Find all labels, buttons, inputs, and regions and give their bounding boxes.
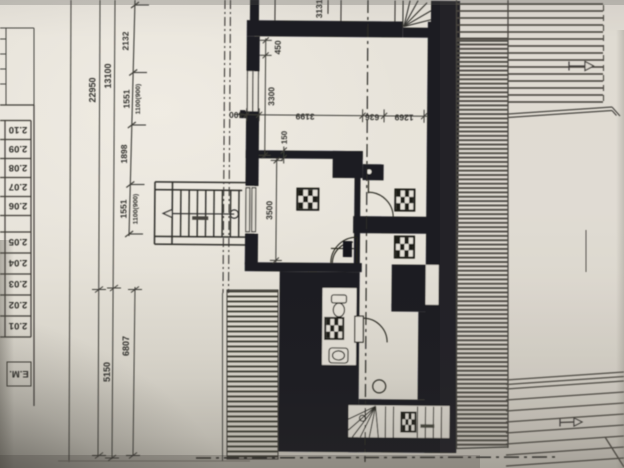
svg-text:2.08: 2.08 (9, 162, 28, 173)
svg-text:1269: 1269 (394, 112, 413, 122)
svg-text:1100(900): 1100(900) (133, 194, 140, 225)
svg-text:1898: 1898 (119, 144, 129, 163)
svg-text:450: 450 (273, 40, 283, 55)
svg-text:1551: 1551 (122, 89, 132, 108)
svg-text:3300: 3300 (266, 87, 276, 106)
svg-text:2132: 2132 (121, 31, 131, 50)
svg-text:2.09: 2.09 (9, 143, 28, 154)
svg-text:13100: 13100 (103, 63, 113, 88)
svg-text:2.07: 2.07 (9, 181, 28, 192)
svg-text:3199: 3199 (295, 112, 314, 122)
svg-text:400: 400 (229, 110, 244, 120)
svg-text:1100(900): 1100(900) (135, 84, 142, 115)
svg-text:2.10: 2.10 (9, 124, 28, 135)
svg-text:2.06: 2.06 (9, 200, 28, 211)
svg-text:22950: 22950 (88, 77, 98, 102)
svg-text:3500: 3500 (264, 201, 274, 220)
svg-text:150: 150 (280, 130, 289, 144)
svg-text:1551: 1551 (119, 199, 129, 218)
